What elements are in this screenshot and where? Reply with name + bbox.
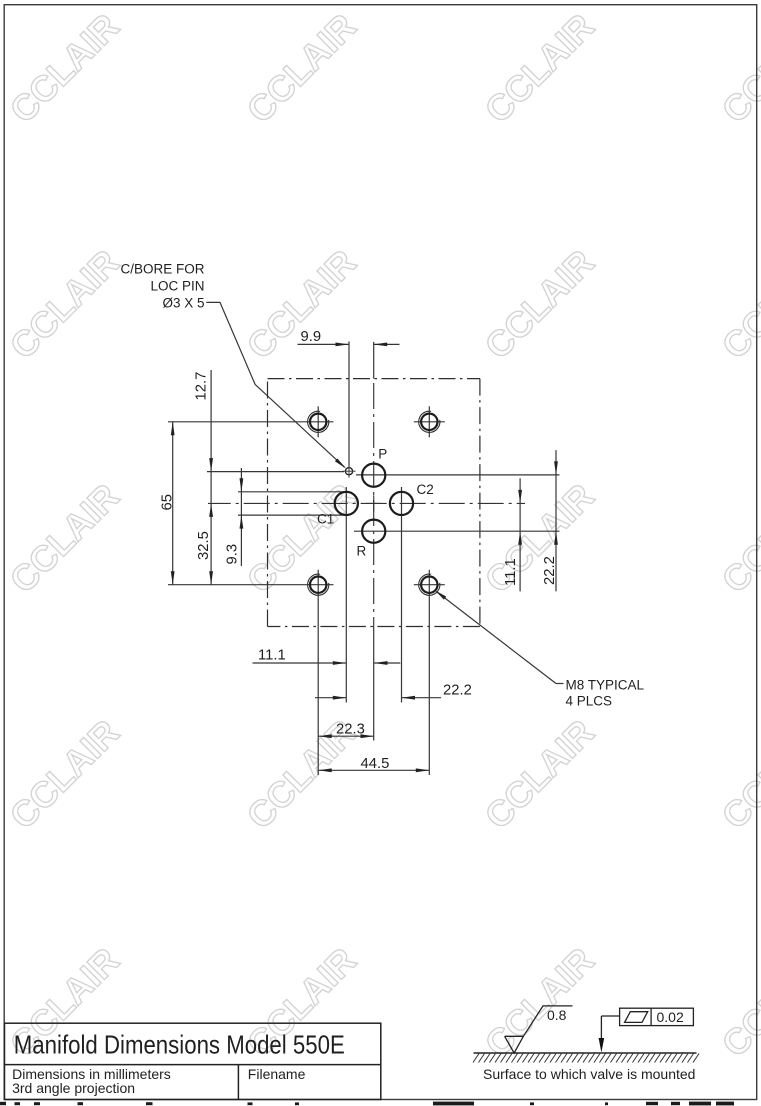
svg-text:44.5: 44.5 xyxy=(361,756,390,772)
svg-text:9.3: 9.3 xyxy=(225,544,241,565)
svg-text:0.8: 0.8 xyxy=(547,1007,567,1023)
svg-text:Ø3 X 5: Ø3 X 5 xyxy=(162,296,204,311)
svg-text:4 PLCS: 4 PLCS xyxy=(566,694,613,709)
svg-text:22.3: 22.3 xyxy=(336,722,365,738)
svg-text:M8 TYPICAL: M8 TYPICAL xyxy=(566,678,645,693)
svg-text:11.1: 11.1 xyxy=(258,648,286,664)
svg-text:C1: C1 xyxy=(317,512,334,527)
svg-text:12.7: 12.7 xyxy=(194,372,210,401)
svg-text:3rd angle projection: 3rd angle projection xyxy=(12,1080,135,1096)
svg-text:Filename: Filename xyxy=(248,1066,306,1082)
svg-text:C2: C2 xyxy=(417,482,434,497)
svg-text:P: P xyxy=(378,447,387,462)
svg-text:Surface to which valve is moun: Surface to which valve is mounted xyxy=(483,1066,695,1082)
svg-text:R: R xyxy=(357,544,367,559)
svg-text:0.02: 0.02 xyxy=(657,1009,684,1025)
svg-text:32.5: 32.5 xyxy=(196,531,212,560)
svg-text:22.2: 22.2 xyxy=(443,683,472,699)
svg-text:65: 65 xyxy=(160,494,176,510)
svg-text:11.1: 11.1 xyxy=(503,558,519,586)
svg-text:Manifold Dimensions Model 550E: Manifold Dimensions Model 550E xyxy=(14,1030,345,1060)
svg-text:22.2: 22.2 xyxy=(542,556,558,585)
svg-text:9.9: 9.9 xyxy=(301,329,322,345)
svg-text:LOC PIN: LOC PIN xyxy=(150,279,204,294)
svg-text:C/BORE FOR: C/BORE FOR xyxy=(120,262,204,277)
